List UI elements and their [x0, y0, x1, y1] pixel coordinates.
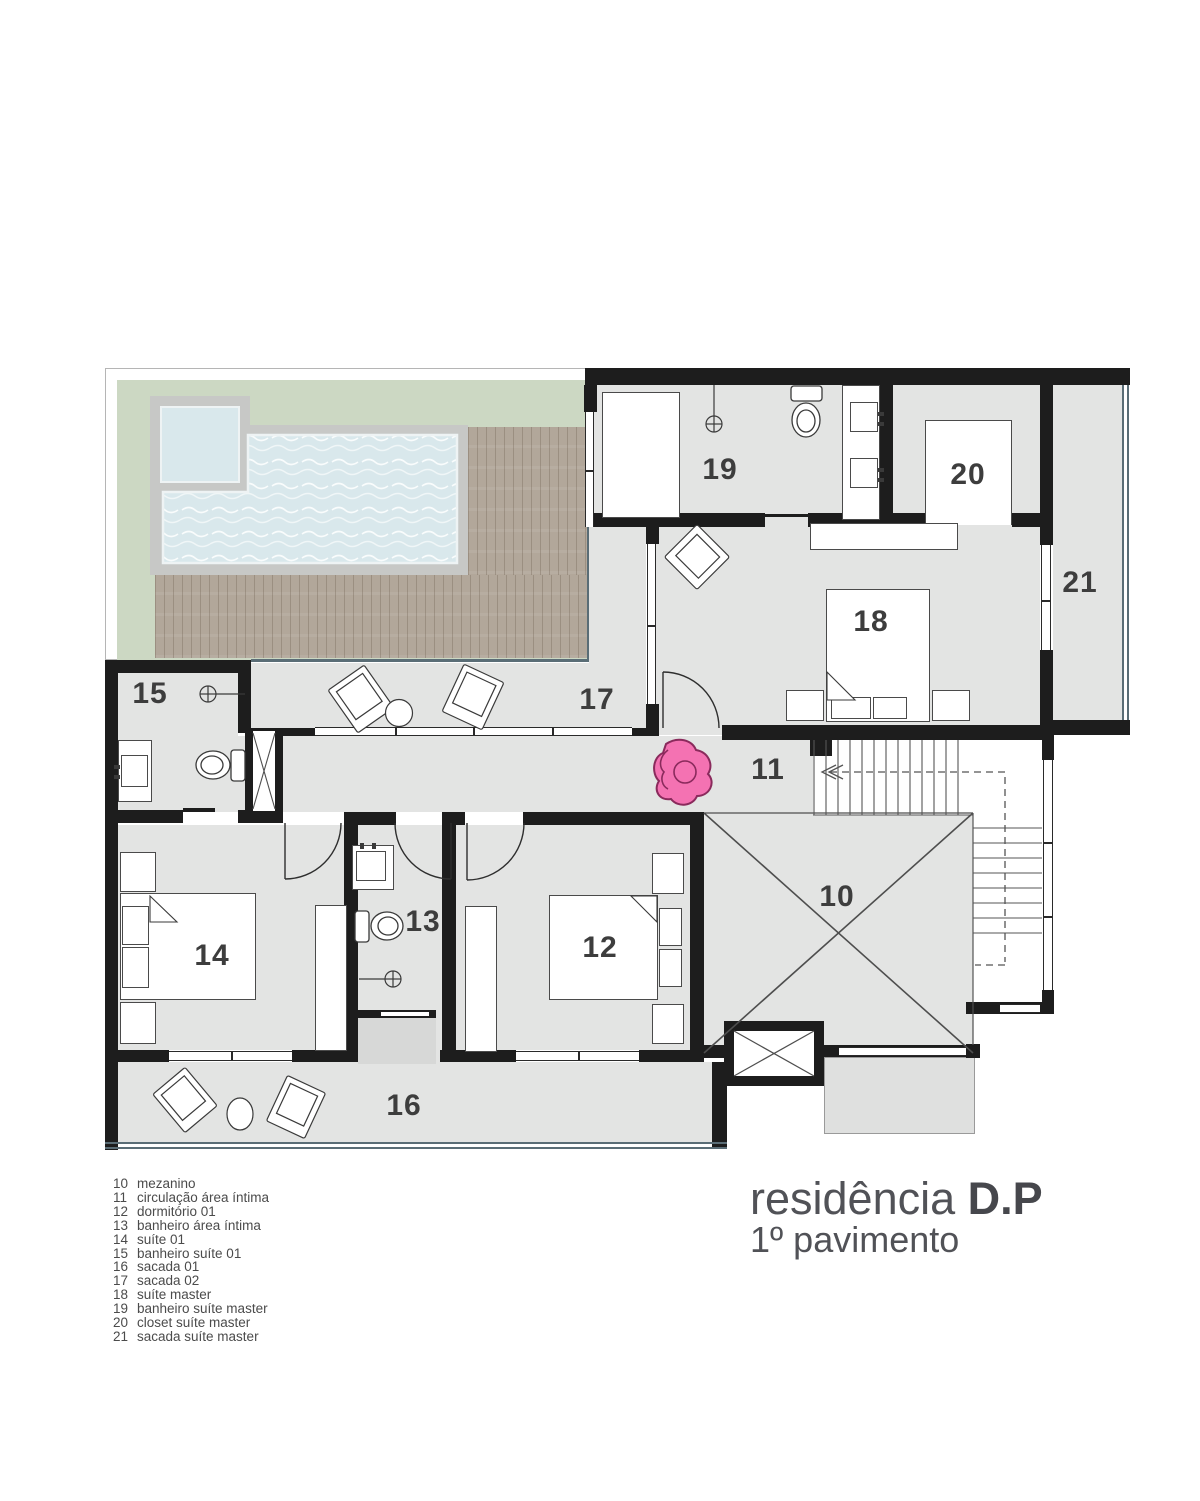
shower-drain-13 — [359, 971, 401, 987]
legend-name: closet suíte master — [137, 1316, 250, 1330]
project-title: residência D.P — [750, 1176, 1043, 1222]
room-label-11: 11 — [751, 753, 785, 787]
room-label-12: 12 — [582, 931, 617, 965]
door-room-14 — [285, 823, 341, 879]
room-label-17: 17 — [579, 683, 614, 717]
stair-treads-lower — [973, 815, 1042, 1002]
toilet-15 — [196, 750, 245, 781]
title-block: residência D.P 1º pavimento — [750, 1176, 1043, 1258]
legend-number: 18 — [113, 1288, 137, 1302]
legend-name: sacada suíte master — [137, 1330, 259, 1344]
elevator-x — [734, 1031, 814, 1076]
legend-name: banheiro área íntima — [137, 1219, 261, 1233]
legend-number: 15 — [113, 1247, 137, 1261]
legend-item: 18suíte master — [113, 1288, 269, 1302]
legend-name: circulação área íntima — [137, 1191, 269, 1205]
room-label-20: 20 — [950, 458, 985, 492]
legend-item: 10mezanino — [113, 1177, 269, 1191]
legend-number: 11 — [113, 1191, 137, 1205]
legend-item: 19banheiro suíte master — [113, 1302, 269, 1316]
legend: 10mezanino 11circulação área íntima 12do… — [113, 1177, 269, 1344]
legend-item: 15banheiro suíte 01 — [113, 1247, 269, 1261]
legend-item: 17sacada 02 — [113, 1274, 269, 1288]
legend-item: 21sacada suíte master — [113, 1330, 269, 1344]
legend-name: banheiro suíte master — [137, 1302, 268, 1316]
legend-name: sacada 02 — [137, 1274, 199, 1288]
lounge-chair — [266, 1075, 325, 1138]
lounge-chair — [442, 664, 504, 730]
armchair-18 — [664, 524, 729, 589]
side-table-16 — [227, 1098, 253, 1130]
room-label-16: 16 — [386, 1089, 421, 1123]
lounge-chair — [153, 1067, 217, 1132]
room-label-18: 18 — [853, 605, 888, 639]
floor-plan-sheet: 10 11 12 13 14 15 16 17 18 19 20 21 10me… — [0, 0, 1200, 1501]
legend-number: 16 — [113, 1260, 137, 1274]
legend-item: 20closet suíte master — [113, 1316, 269, 1330]
legend-name: sacada 01 — [137, 1260, 199, 1274]
legend-name: mezanino — [137, 1177, 196, 1191]
lounge-chair — [328, 665, 394, 733]
room-label-14: 14 — [194, 939, 229, 973]
legend-number: 21 — [113, 1330, 137, 1344]
legend-item: 11circulação área íntima — [113, 1191, 269, 1205]
bed-fold-14 — [150, 896, 177, 922]
floor-subtitle: 1º pavimento — [750, 1222, 1043, 1258]
duct-shaft-x — [253, 733, 275, 809]
legend-number: 12 — [113, 1205, 137, 1219]
legend-name: banheiro suíte 01 — [137, 1247, 241, 1261]
legend-number: 19 — [113, 1302, 137, 1316]
door-room-18 — [663, 672, 719, 728]
toilet-19 — [791, 386, 822, 437]
legend-name: suíte master — [137, 1288, 211, 1302]
room-label-13: 13 — [405, 905, 440, 939]
main-pool — [163, 435, 457, 563]
legend-item: 16sacada 01 — [113, 1260, 269, 1274]
legend-number: 20 — [113, 1316, 137, 1330]
shower-drain-19 — [706, 385, 722, 432]
room-label-15: 15 — [132, 677, 167, 711]
shower-drain-15 — [200, 686, 245, 702]
legend-name: suíte 01 — [137, 1233, 185, 1247]
stair-treads-upper — [813, 740, 973, 815]
legend-number: 14 — [113, 1233, 137, 1247]
legend-number: 10 — [113, 1177, 137, 1191]
side-table-17 — [386, 700, 413, 727]
bed-fold-12 — [631, 896, 657, 922]
room-label-10: 10 — [819, 880, 854, 914]
legend-item: 14suíte 01 — [113, 1233, 269, 1247]
legend-name: dormitório 01 — [137, 1205, 216, 1219]
person-figure — [654, 740, 712, 805]
project-name: residência — [750, 1173, 955, 1224]
legend-number: 17 — [113, 1274, 137, 1288]
project-initials: D.P — [968, 1173, 1043, 1224]
room-label-19: 19 — [702, 453, 737, 487]
legend-item: 13banheiro área íntima — [113, 1219, 269, 1233]
mezzanine-void-x — [704, 813, 973, 1053]
room-label-21: 21 — [1062, 566, 1097, 600]
door-room-12 — [467, 823, 524, 880]
legend-number: 13 — [113, 1219, 137, 1233]
legend-item: 12dormitório 01 — [113, 1205, 269, 1219]
bed-fold-18 — [827, 672, 855, 700]
door-room-13 — [395, 823, 451, 879]
toilet-13 — [355, 911, 403, 942]
